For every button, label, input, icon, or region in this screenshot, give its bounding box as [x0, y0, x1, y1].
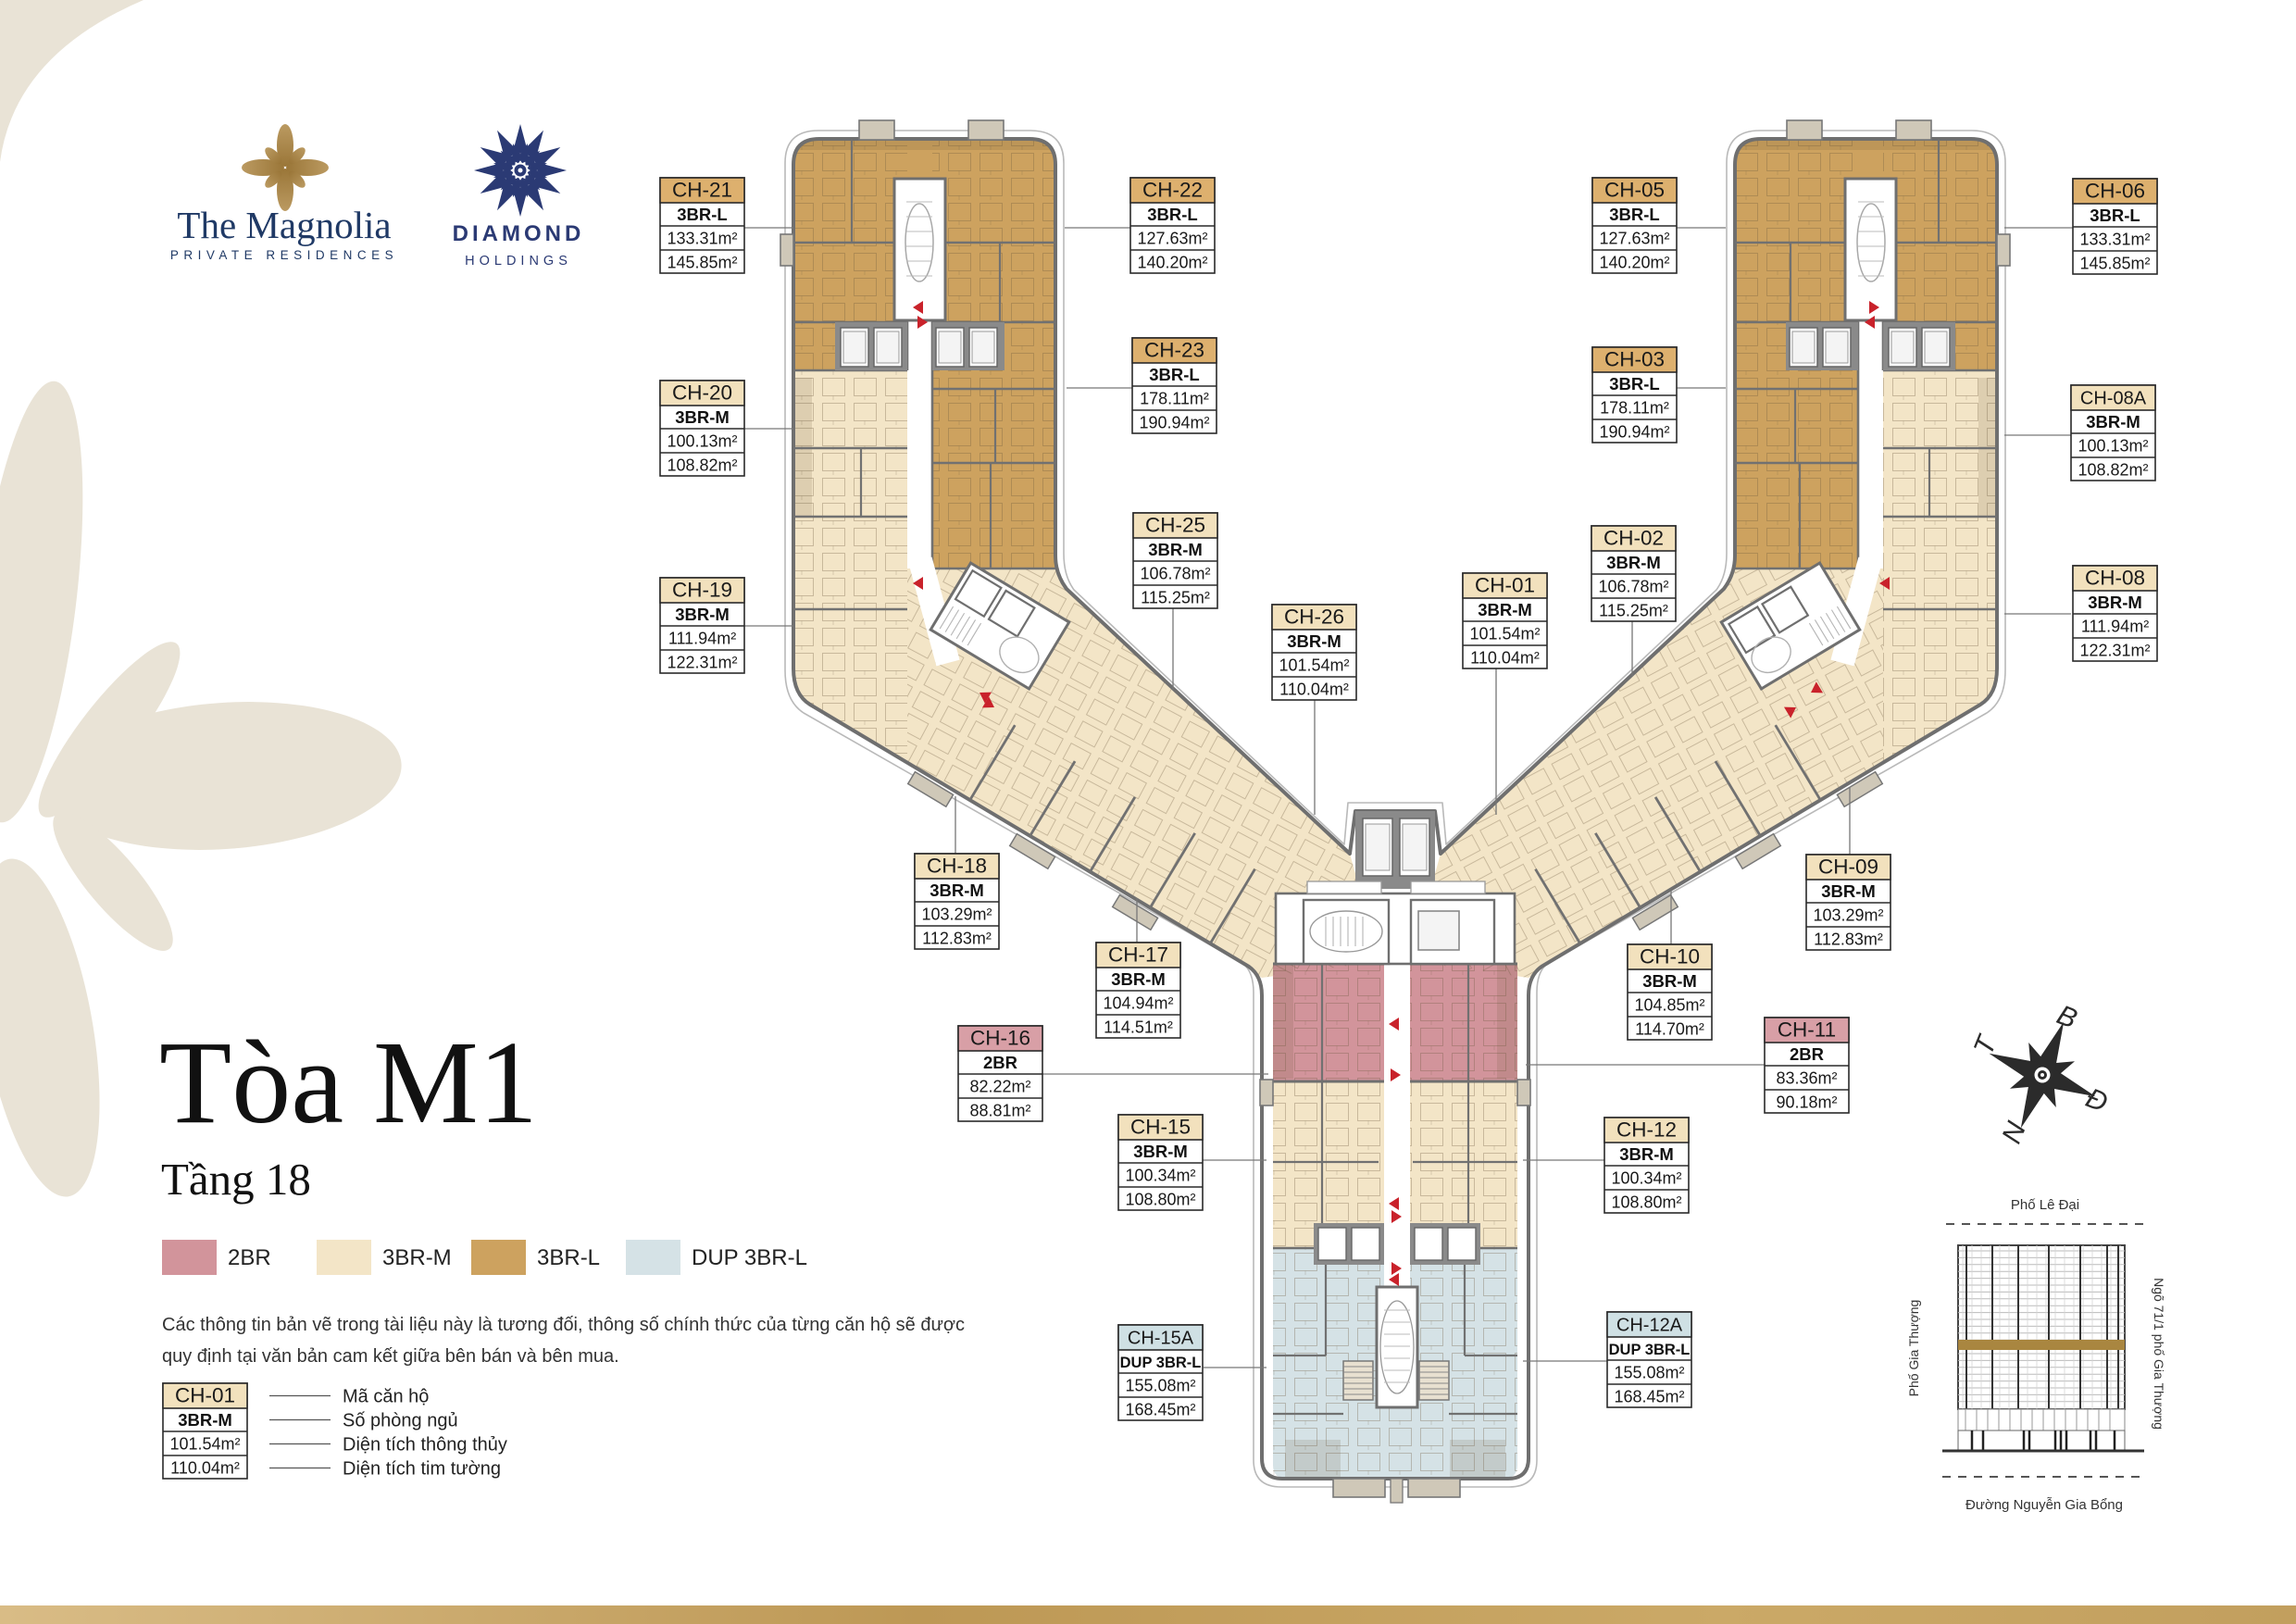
svg-text:101.54m²: 101.54m²: [1279, 656, 1349, 675]
svg-text:155.08m²: 155.08m²: [1614, 1364, 1684, 1382]
svg-text:3BR-M: 3BR-M: [2088, 593, 2142, 612]
svg-text:190.94m²: 190.94m²: [1599, 423, 1669, 442]
svg-text:127.63m²: 127.63m²: [1599, 230, 1669, 248]
svg-text:Ngõ 71/1 phố Gia Thượng: Ngõ 71/1 phố Gia Thượng: [2152, 1278, 2166, 1430]
svg-text:3BR-M: 3BR-M: [1619, 1144, 1674, 1164]
svg-text:2BR: 2BR: [1790, 1044, 1824, 1064]
svg-text:103.29m²: 103.29m²: [921, 906, 992, 924]
svg-text:CH-15A: CH-15A: [1128, 1329, 1194, 1349]
svg-text:110.04m²: 110.04m²: [170, 1459, 240, 1478]
svg-text:CH-11: CH-11: [1778, 1018, 1836, 1042]
svg-text:145.85m²: 145.85m²: [2079, 255, 2150, 273]
svg-text:111.94m²: 111.94m²: [2081, 618, 2149, 636]
svg-text:CH-01: CH-01: [175, 1384, 235, 1407]
svg-text:CH-18: CH-18: [927, 855, 987, 878]
svg-text:104.85m²: 104.85m²: [1634, 996, 1704, 1015]
svg-text:3BR-M: 3BR-M: [178, 1410, 232, 1430]
svg-text:HOLDINGS: HOLDINGS: [465, 254, 572, 269]
svg-text:3BR-L: 3BR-L: [1147, 205, 1197, 224]
svg-text:The Magnolia: The Magnolia: [177, 204, 391, 246]
svg-text:3BR-M: 3BR-M: [382, 1245, 452, 1270]
svg-text:3BR-L: 3BR-L: [1609, 205, 1659, 224]
svg-text:140.20m²: 140.20m²: [1137, 254, 1207, 272]
svg-text:178.11m²: 178.11m²: [1600, 399, 1669, 418]
svg-text:CH-03: CH-03: [1604, 348, 1665, 371]
svg-text:100.34m²: 100.34m²: [1611, 1169, 1681, 1188]
svg-text:110.04m²: 110.04m²: [1279, 681, 1349, 699]
svg-text:122.31m²: 122.31m²: [667, 654, 737, 672]
svg-text:108.82m²: 108.82m²: [2078, 461, 2148, 480]
svg-text:140.20m²: 140.20m²: [1599, 254, 1669, 272]
svg-text:Đường Nguyễn Gia Bổng: Đường Nguyễn Gia Bổng: [1965, 1497, 2123, 1513]
svg-text:111.94m²: 111.94m²: [668, 630, 736, 648]
svg-text:88.81m²: 88.81m²: [969, 1102, 1030, 1120]
svg-text:Phố Gia Thượng: Phố Gia Thượng: [1906, 1300, 1921, 1397]
svg-text:CH-08A: CH-08A: [2080, 389, 2147, 409]
svg-text:104.94m²: 104.94m²: [1103, 994, 1173, 1013]
svg-text:Phố Lê Đại: Phố Lê Đại: [2011, 1197, 2079, 1213]
svg-text:CH-22: CH-22: [1142, 179, 1203, 202]
svg-text:DUP 3BR-L: DUP 3BR-L: [692, 1245, 807, 1270]
svg-text:3BR-L: 3BR-L: [2090, 206, 2140, 225]
svg-text:2BR: 2BR: [228, 1245, 271, 1270]
svg-text:3BR-M: 3BR-M: [1111, 969, 1166, 989]
svg-text:CH-23: CH-23: [1144, 339, 1204, 362]
svg-text:90.18m²: 90.18m²: [1776, 1093, 1837, 1112]
svg-text:3BR-M: 3BR-M: [1642, 971, 1697, 991]
svg-text:108.82m²: 108.82m²: [667, 456, 737, 475]
svg-text:3BR-M: 3BR-M: [675, 605, 730, 624]
svg-text:Tầng 18: Tầng 18: [161, 1154, 311, 1205]
svg-text:101.54m²: 101.54m²: [169, 1435, 240, 1454]
svg-text:CH-09: CH-09: [1818, 856, 1878, 879]
svg-text:145.85m²: 145.85m²: [667, 254, 737, 272]
svg-text:CH-15: CH-15: [1130, 1116, 1191, 1139]
svg-text:101.54m²: 101.54m²: [1469, 625, 1540, 643]
svg-text:100.13m²: 100.13m²: [667, 432, 737, 451]
svg-text:100.34m²: 100.34m²: [1125, 1167, 1195, 1185]
svg-text:110.04m²: 110.04m²: [1470, 649, 1540, 668]
svg-text:133.31m²: 133.31m²: [2079, 231, 2150, 249]
svg-text:3BR-M: 3BR-M: [2086, 412, 2140, 431]
svg-text:CH-05: CH-05: [1604, 179, 1665, 202]
svg-text:CH-02: CH-02: [1603, 527, 1664, 550]
svg-text:Tòa M1: Tòa M1: [159, 1017, 538, 1148]
svg-text:CH-21: CH-21: [672, 179, 732, 202]
svg-text:3BR-L: 3BR-L: [1609, 374, 1659, 394]
svg-text:168.45m²: 168.45m²: [1614, 1388, 1684, 1406]
svg-text:106.78m²: 106.78m²: [1598, 578, 1668, 596]
svg-text:CH-20: CH-20: [672, 381, 732, 405]
svg-text:3BR-M: 3BR-M: [1821, 881, 1876, 901]
svg-text:DUP 3BR-L: DUP 3BR-L: [1609, 1342, 1691, 1358]
svg-text:83.36m²: 83.36m²: [1776, 1069, 1837, 1088]
svg-text:Diện tích tim tường: Diện tích tim tường: [343, 1459, 501, 1480]
svg-text:3BR-M: 3BR-M: [930, 881, 984, 900]
svg-text:108.80m²: 108.80m²: [1611, 1193, 1681, 1212]
svg-text:CH-01: CH-01: [1475, 574, 1535, 597]
svg-text:3BR-L: 3BR-L: [677, 205, 727, 224]
svg-text:100.13m²: 100.13m²: [2078, 437, 2148, 456]
svg-text:106.78m²: 106.78m²: [1140, 565, 1210, 583]
svg-text:PRIVATE RESIDENCES: PRIVATE RESIDENCES: [170, 248, 398, 262]
svg-text:CH-17: CH-17: [1108, 943, 1168, 967]
svg-text:quy định tại văn bản cam kết g: quy định tại văn bản cam kết giữa bên bá…: [162, 1346, 619, 1367]
svg-text:2BR: 2BR: [983, 1053, 1017, 1072]
svg-text:CH-12: CH-12: [1616, 1118, 1677, 1142]
svg-text:CH-19: CH-19: [672, 579, 732, 602]
svg-text:CH-06: CH-06: [2085, 180, 2145, 203]
svg-text:3BR-M: 3BR-M: [1606, 553, 1661, 572]
svg-text:108.80m²: 108.80m²: [1125, 1191, 1195, 1209]
svg-text:CH-16: CH-16: [970, 1027, 1030, 1050]
svg-text:178.11m²: 178.11m²: [1140, 390, 1209, 408]
svg-text:168.45m²: 168.45m²: [1125, 1401, 1195, 1419]
svg-text:112.83m²: 112.83m²: [922, 930, 992, 948]
svg-text:CH-10: CH-10: [1640, 945, 1700, 968]
svg-text:Mã căn hộ: Mã căn hộ: [343, 1387, 429, 1407]
svg-text:DIAMOND: DIAMOND: [453, 221, 585, 246]
svg-text:3BR-M: 3BR-M: [1133, 1142, 1188, 1161]
svg-text:190.94m²: 190.94m²: [1139, 414, 1209, 432]
svg-text:114.51m²: 114.51m²: [1104, 1018, 1173, 1037]
svg-text:3BR-L: 3BR-L: [537, 1245, 600, 1270]
svg-text:133.31m²: 133.31m²: [667, 230, 737, 248]
svg-text:Số phòng ngủ: Số phòng ngủ: [343, 1411, 458, 1431]
svg-text:DUP 3BR-L: DUP 3BR-L: [1120, 1355, 1202, 1371]
svg-text:115.25m²: 115.25m²: [1599, 602, 1668, 620]
svg-text:3BR-M: 3BR-M: [1287, 631, 1341, 651]
svg-text:3BR-M: 3BR-M: [675, 407, 730, 427]
svg-text:82.22m²: 82.22m²: [969, 1078, 1030, 1096]
svg-text:3BR-L: 3BR-L: [1149, 365, 1199, 384]
svg-text:3BR-M: 3BR-M: [1478, 600, 1532, 619]
svg-text:112.83m²: 112.83m²: [1814, 931, 1883, 949]
svg-text:CH-25: CH-25: [1145, 514, 1205, 537]
svg-text:Diện tích thông thủy: Diện tích thông thủy: [343, 1435, 507, 1455]
svg-text:122.31m²: 122.31m²: [2079, 642, 2150, 660]
svg-text:155.08m²: 155.08m²: [1125, 1377, 1195, 1395]
svg-text:CH-26: CH-26: [1284, 606, 1344, 629]
svg-text:114.70m²: 114.70m²: [1635, 1020, 1704, 1039]
svg-text:3BR-M: 3BR-M: [1148, 540, 1203, 559]
svg-text:Các thông tin bản vẽ trong tài: Các thông tin bản vẽ trong tài liệu này …: [162, 1315, 965, 1335]
svg-text:CH-08: CH-08: [2085, 567, 2145, 590]
svg-text:127.63m²: 127.63m²: [1137, 230, 1207, 248]
svg-text:CH-12A: CH-12A: [1616, 1316, 1683, 1336]
svg-text:103.29m²: 103.29m²: [1813, 906, 1883, 925]
svg-text:115.25m²: 115.25m²: [1141, 589, 1210, 607]
